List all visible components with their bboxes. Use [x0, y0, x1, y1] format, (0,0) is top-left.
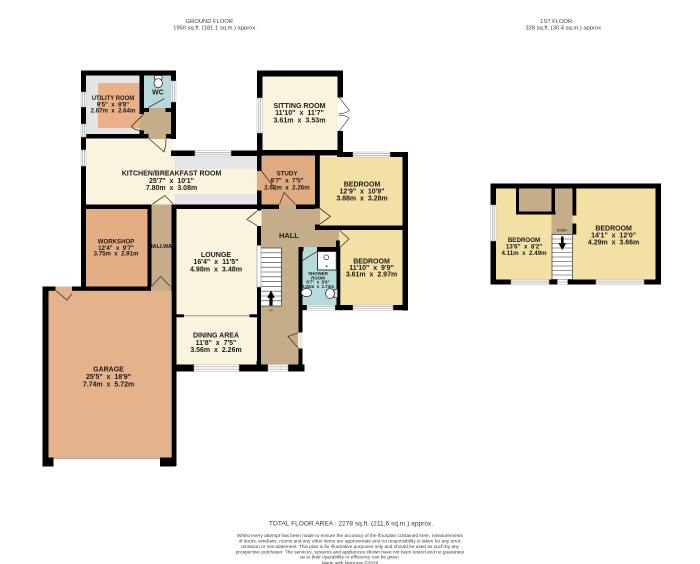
- svg-text:WC: WC: [152, 89, 164, 96]
- svg-text:DINING AREA: DINING AREA: [193, 333, 239, 340]
- svg-text:Whilst every attempt has been: Whilst every attempt has been made to en…: [237, 533, 464, 539]
- svg-text:3.75m x 2.91m: 3.75m x 2.91m: [94, 250, 139, 257]
- svg-text:2.87m x 2.64m: 2.87m x 2.64m: [91, 108, 136, 115]
- svg-text:of doors, windows, rooms and a: of doors, windows, rooms and any other i…: [238, 538, 461, 544]
- svg-text:DOWN: DOWN: [557, 228, 568, 232]
- svg-text:3.88m x 3.28m: 3.88m x 3.28m: [336, 196, 387, 203]
- svg-text:2.02m x 1.73m: 2.02m x 1.73m: [302, 284, 334, 289]
- svg-text:3.61m x 2.97m: 3.61m x 2.97m: [346, 272, 397, 279]
- svg-text:328 sq.ft. (30.4 sq.m.) approx: 328 sq.ft. (30.4 sq.m.) approx.: [525, 25, 603, 31]
- svg-text:2.62m x 2.26m: 2.62m x 2.26m: [264, 185, 310, 192]
- svg-text:11'8" x 7'5": 11'8" x 7'5": [196, 340, 237, 347]
- svg-text:7.74m x 5.72m: 7.74m x 5.72m: [83, 381, 134, 388]
- svg-text:omission or mis-statement. Thi: omission or mis-statement. This plan is …: [241, 544, 460, 550]
- svg-text:BEDROOM: BEDROOM: [344, 181, 381, 188]
- svg-text:KITCHEN/BREAKFAST ROOM: KITCHEN/BREAKFAST ROOM: [122, 171, 222, 178]
- svg-text:GARAGE: GARAGE: [93, 367, 124, 374]
- svg-text:1950 sq.ft. (181.1 sq.m.) appr: 1950 sq.ft. (181.1 sq.m.) approx.: [173, 25, 257, 31]
- svg-text:TOTAL FLOOR AREA : 2278 sq.ft.: TOTAL FLOOR AREA : 2278 sq.ft. (211.6 sq…: [269, 521, 433, 528]
- svg-text:HALLWAY: HALLWAY: [149, 244, 176, 250]
- svg-text:GROUND FLOOR: GROUND FLOOR: [186, 19, 233, 25]
- svg-text:4.11m x 2.49m: 4.11m x 2.49m: [501, 250, 547, 257]
- svg-text:4.29m x 3.66m: 4.29m x 3.66m: [588, 239, 639, 246]
- svg-text:HALL: HALL: [279, 231, 299, 240]
- svg-text:STUDY: STUDY: [277, 171, 299, 178]
- svg-text:8'7" x 7'5": 8'7" x 7'5": [271, 178, 304, 185]
- svg-text:as to their operability or eff: as to their operability or efficiency ca…: [300, 554, 400, 560]
- svg-text:prospective purchaser. The ser: prospective purchaser. The services, sys…: [236, 549, 465, 555]
- svg-text:3.61m x 3.53m: 3.61m x 3.53m: [273, 117, 325, 125]
- svg-text:3.56m x 2.26m: 3.56m x 2.26m: [190, 347, 241, 354]
- svg-text:7.80m x 3.08m: 7.80m x 3.08m: [146, 185, 197, 192]
- svg-text:25'7" x 10'1": 25'7" x 10'1": [149, 178, 194, 185]
- svg-text:4.98m x 3.48m: 4.98m x 3.48m: [190, 265, 242, 273]
- svg-text:25'5" x 18'9": 25'5" x 18'9": [86, 374, 131, 381]
- svg-text:1ST FLOOR: 1ST FLOOR: [540, 19, 572, 25]
- svg-text:12'9" x 10'9": 12'9" x 10'9": [340, 189, 385, 196]
